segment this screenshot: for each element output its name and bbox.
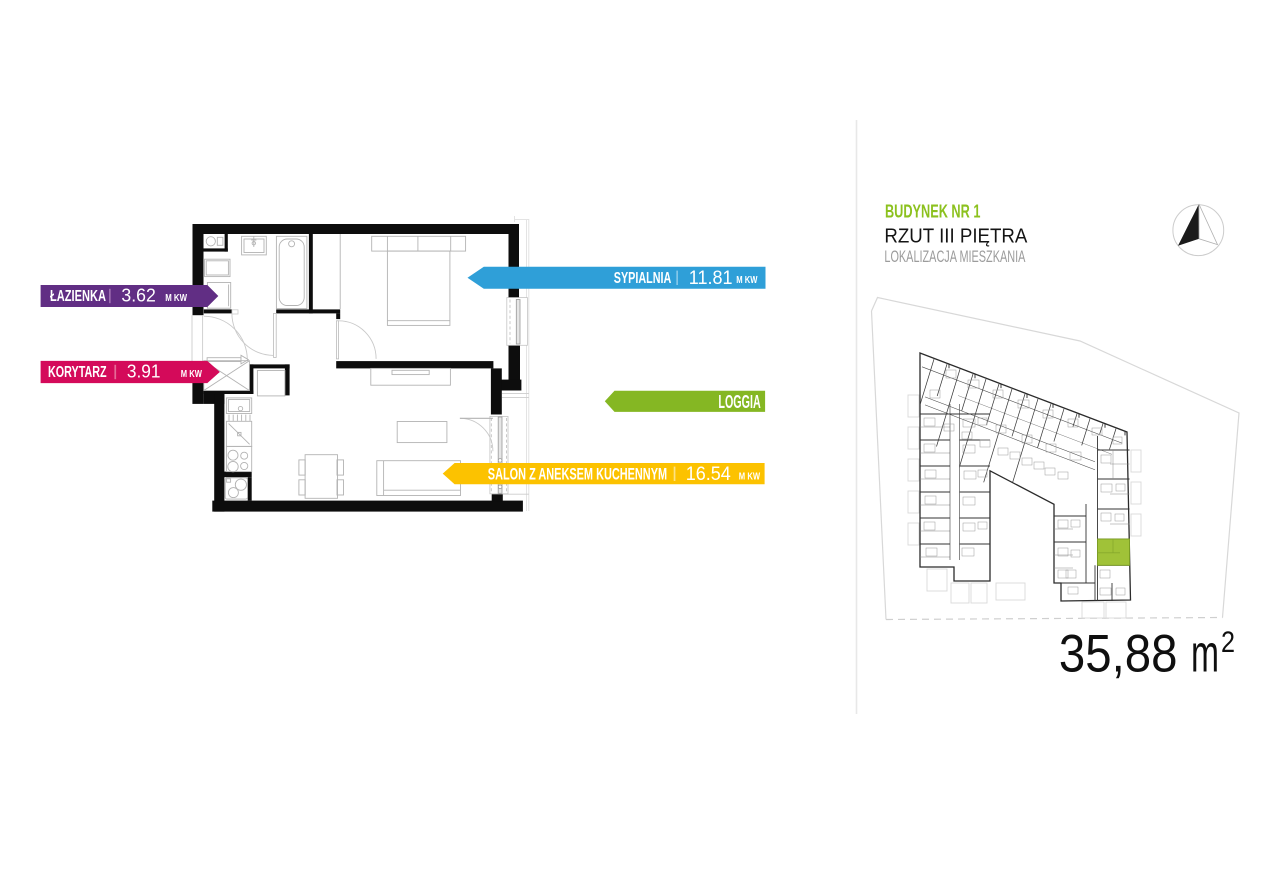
svg-text:LOKALIZACJA MIESZKANIA: LOKALIZACJA MIESZKANIA: [884, 247, 1025, 266]
svg-text:LOGGIA: LOGGIA: [718, 392, 760, 412]
svg-text:11.81: 11.81: [689, 268, 733, 289]
svg-text:SALON Z ANEKSEM KUCHENNYM: SALON Z ANEKSEM KUCHENNYM: [488, 465, 667, 484]
svg-text:SYPIALNIA: SYPIALNIA: [614, 270, 672, 287]
svg-text:M KW: M KW: [181, 369, 203, 380]
svg-text:KORYTARZ: KORYTARZ: [48, 364, 107, 381]
svg-text:16.54: 16.54: [686, 464, 732, 485]
svg-text:M KW: M KW: [739, 472, 761, 483]
svg-text:3.62: 3.62: [121, 285, 155, 306]
svg-text:35,88: 35,88: [1059, 625, 1178, 684]
svg-text:M KW: M KW: [736, 275, 758, 286]
svg-text:BUDYNEK NR 1: BUDYNEK NR 1: [885, 201, 980, 221]
svg-text:RZUT III PIĘTRA: RZUT III PIĘTRA: [884, 226, 1028, 248]
svg-text:m: m: [1191, 625, 1219, 684]
svg-text:2: 2: [1221, 626, 1235, 659]
svg-text:ŁAZIENKA: ŁAZIENKA: [50, 288, 106, 305]
svg-text:M KW: M KW: [165, 293, 187, 304]
svg-text:3.91: 3.91: [127, 361, 161, 382]
